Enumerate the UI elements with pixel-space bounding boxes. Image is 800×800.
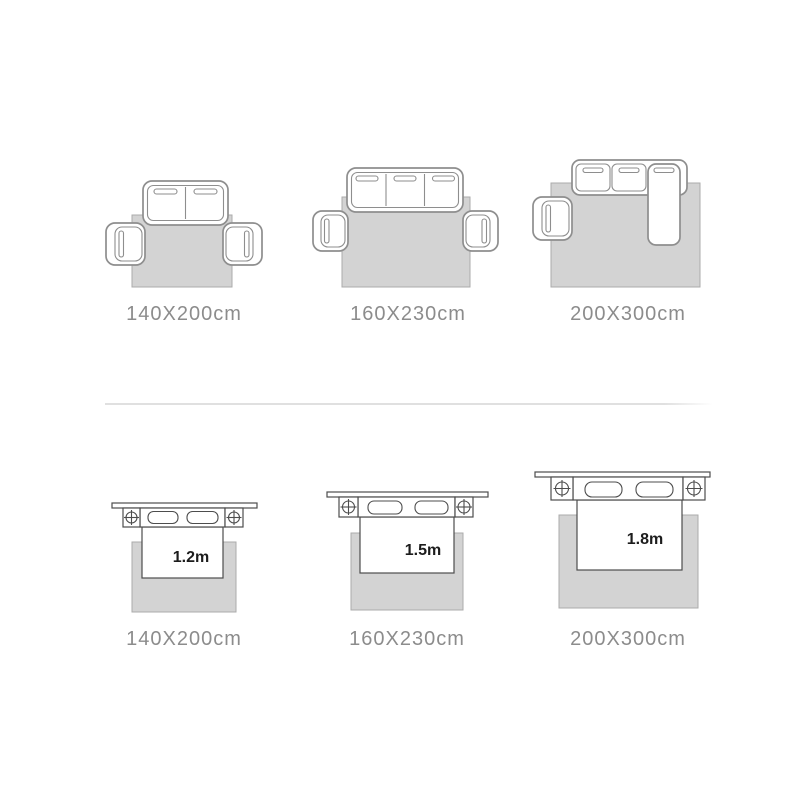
sofa-rug-diagram-140x200 [104,178,264,290]
bed-rug-diagram-140x200: 1.2m [108,500,260,615]
sofa-size-label-3: 200X300cm [548,303,708,326]
sofa-scene-medium [310,165,502,292]
sofa-size-label-1: 140X200cm [104,303,264,326]
rug-size-guide: 140X200cm [0,0,800,800]
armchair-left-icon [106,223,145,265]
armchair-right-icon [463,211,498,251]
sofa-scene-small [104,178,264,290]
sofa-rug-diagram-200x300 [528,155,705,292]
bed-width-label-2: 1.5m [398,542,448,560]
sofa-scene-large [528,155,705,292]
armchair-left-icon [313,211,348,251]
bed-width-label-1: 1.2m [166,549,216,567]
sofa-size-label-2: 160X230cm [328,303,488,326]
bed-rug-diagram-200x300: 1.8m [530,468,715,612]
bed-size-label-2: 160X230cm [327,628,487,651]
section-divider [105,403,713,405]
bed-rug-diagram-160x230: 1.5m [320,488,500,612]
bed-width-label-3: 1.8m [620,531,670,549]
three-seat-sofa-icon [347,168,463,212]
two-seat-sofa-icon [143,181,228,225]
sofa-rug-diagram-160x230 [310,165,502,292]
armchair-left-icon [533,197,572,240]
armchair-right-icon [223,223,262,265]
bed-size-label-1: 140X200cm [104,628,264,651]
bed-size-label-3: 200X300cm [548,628,708,651]
